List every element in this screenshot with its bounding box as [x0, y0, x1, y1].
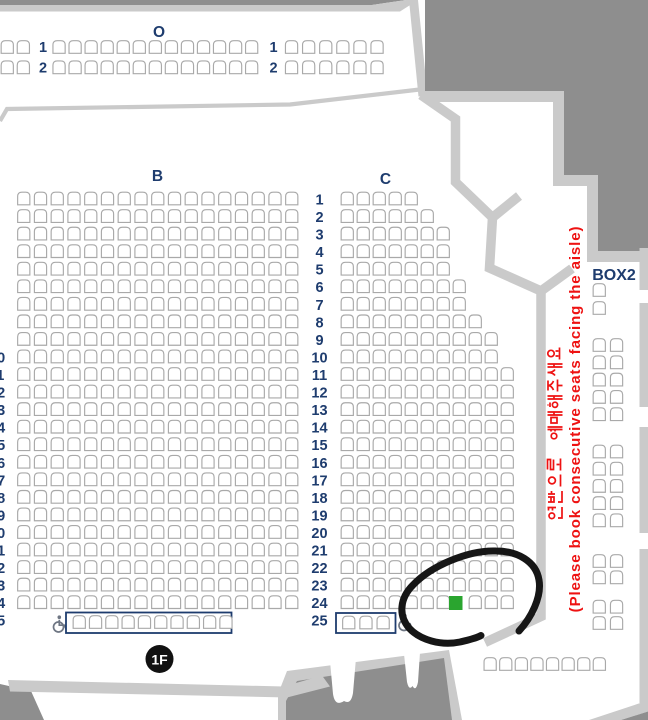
svg-text:C: C	[380, 171, 391, 188]
svg-text:19: 19	[311, 508, 327, 524]
svg-text:21: 21	[0, 544, 5, 560]
svg-text:O: O	[153, 24, 165, 41]
svg-text:15: 15	[311, 438, 327, 454]
svg-text:22: 22	[0, 561, 5, 577]
svg-text:8: 8	[315, 315, 323, 331]
svg-text:11: 11	[312, 368, 327, 384]
svg-text:14: 14	[0, 421, 5, 437]
svg-text:1F: 1F	[151, 652, 168, 668]
svg-text:10: 10	[0, 351, 5, 367]
svg-text:20: 20	[311, 526, 327, 542]
svg-text:25: 25	[311, 614, 327, 630]
svg-text:16: 16	[311, 456, 327, 472]
svg-text:18: 18	[311, 491, 327, 507]
svg-text:20: 20	[0, 526, 5, 542]
svg-text:B: B	[152, 168, 163, 185]
svg-text:1: 1	[315, 193, 323, 209]
svg-text:7: 7	[315, 298, 323, 314]
svg-text:23: 23	[311, 579, 327, 595]
svg-text:11: 11	[0, 368, 4, 384]
svg-text:1: 1	[39, 40, 47, 56]
svg-text:5: 5	[315, 263, 323, 279]
svg-text:BOX2: BOX2	[592, 267, 636, 284]
svg-text:3: 3	[315, 228, 323, 244]
svg-text:2: 2	[269, 60, 277, 76]
svg-text:2: 2	[39, 60, 47, 76]
svg-text:14: 14	[311, 421, 327, 437]
svg-text:4: 4	[315, 245, 323, 261]
svg-text:(Please book consecutive seats: (Please book consecutive seats facing th…	[567, 226, 584, 613]
svg-text:12: 12	[0, 386, 5, 402]
svg-text:13: 13	[311, 403, 327, 419]
svg-text:24: 24	[311, 596, 327, 612]
svg-text:10: 10	[311, 351, 327, 367]
svg-text:15: 15	[0, 438, 5, 454]
svg-text:21: 21	[311, 544, 327, 560]
svg-text:12: 12	[311, 386, 327, 402]
svg-text:25: 25	[0, 614, 5, 630]
svg-text:9: 9	[315, 333, 323, 349]
svg-text:6: 6	[315, 280, 323, 296]
svg-text:2: 2	[315, 210, 323, 226]
svg-text:22: 22	[311, 561, 327, 577]
svg-text:19: 19	[0, 508, 5, 524]
svg-text:18: 18	[0, 491, 5, 507]
svg-text:16: 16	[0, 456, 5, 472]
svg-text:23: 23	[0, 579, 5, 595]
svg-text:17: 17	[311, 473, 327, 489]
svg-text:17: 17	[0, 473, 5, 489]
svg-text:24: 24	[0, 596, 5, 612]
svg-text:13: 13	[0, 403, 5, 419]
svg-text:1: 1	[269, 40, 277, 56]
